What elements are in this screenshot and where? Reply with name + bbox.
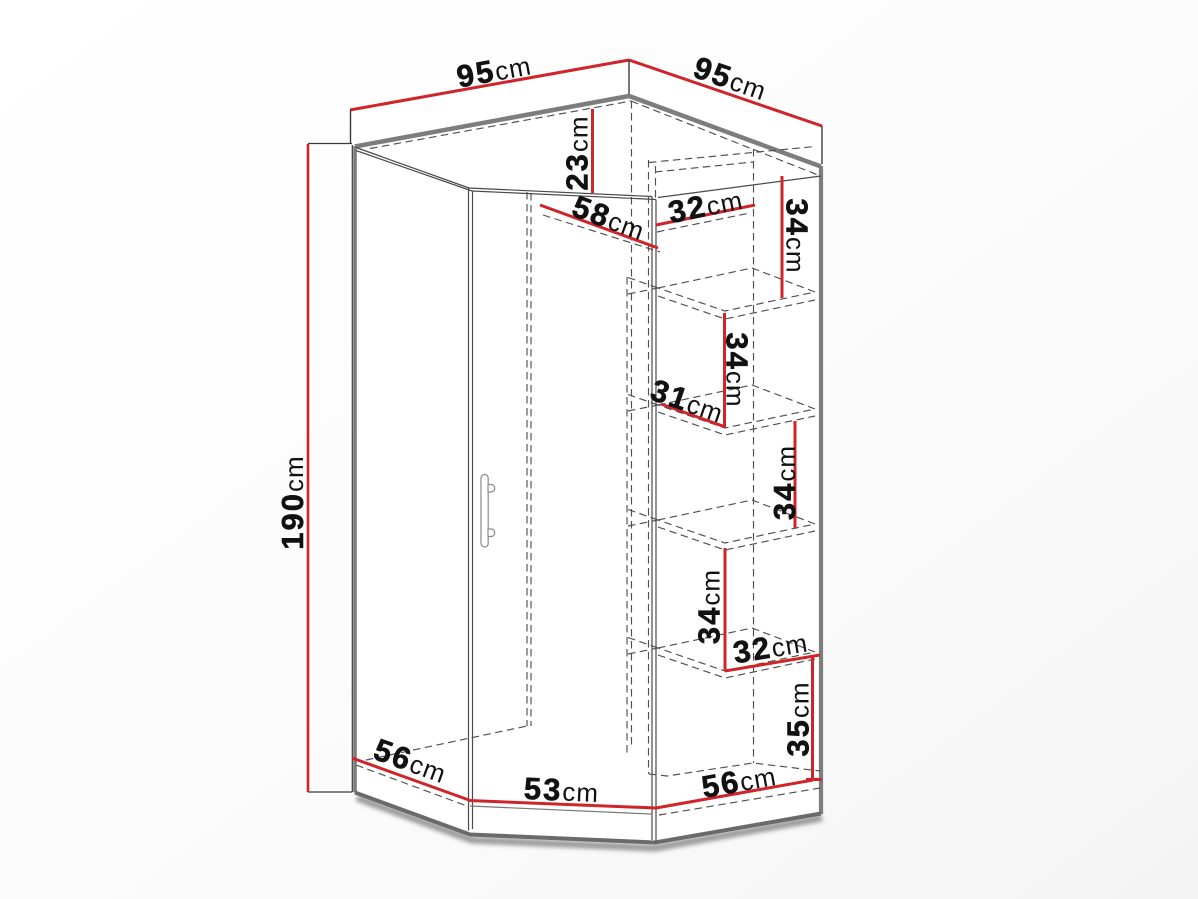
svg-text:34cm: 34cm bbox=[720, 332, 755, 407]
svg-text:35cm: 35cm bbox=[781, 681, 816, 756]
svg-text:190cm: 190cm bbox=[275, 455, 310, 549]
svg-text:34cm: 34cm bbox=[780, 198, 815, 273]
svg-text:53cm: 53cm bbox=[523, 771, 600, 809]
svg-text:23cm: 23cm bbox=[560, 115, 595, 190]
svg-text:34cm: 34cm bbox=[692, 569, 727, 644]
svg-text:34cm: 34cm bbox=[767, 445, 802, 520]
